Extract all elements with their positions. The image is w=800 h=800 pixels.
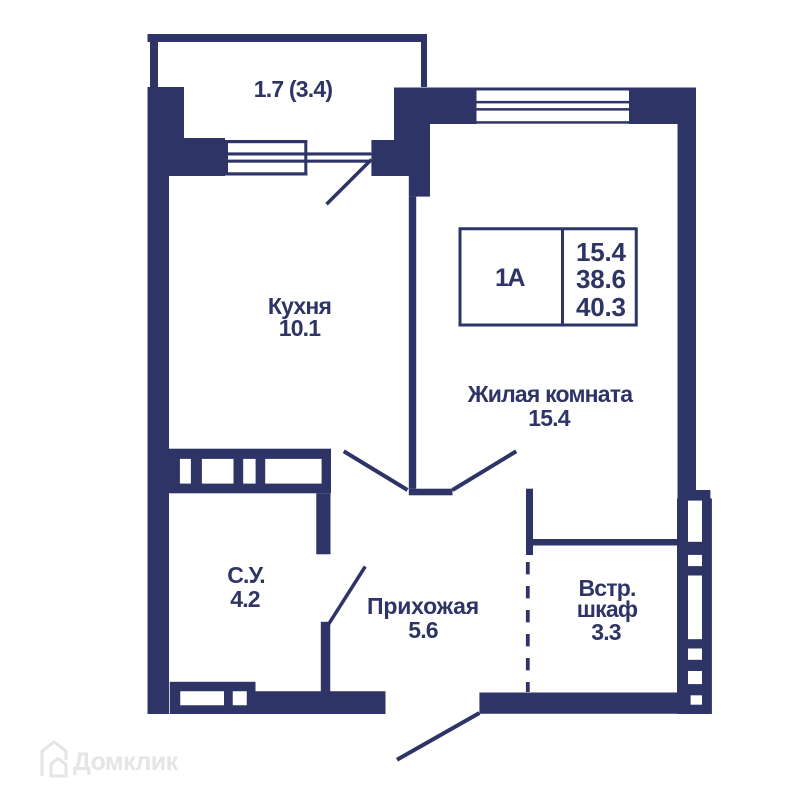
svg-text:15.4: 15.4 — [528, 405, 571, 431]
svg-text:1.7 (3.4): 1.7 (3.4) — [254, 76, 333, 102]
svg-text:40.3: 40.3 — [576, 292, 626, 322]
svg-text:5.6: 5.6 — [408, 617, 438, 643]
svg-text:Домклик: Домклик — [73, 748, 179, 776]
svg-text:Жилая комната: Жилая комната — [467, 381, 633, 407]
svg-text:1А: 1А — [495, 264, 525, 292]
svg-text:3.3: 3.3 — [591, 619, 621, 645]
svg-text:С.У.: С.У. — [227, 562, 265, 588]
svg-text:Прихожая: Прихожая — [367, 593, 479, 619]
svg-text:15.4: 15.4 — [576, 237, 627, 267]
svg-text:4.2: 4.2 — [230, 586, 260, 612]
svg-text:10.1: 10.1 — [279, 315, 322, 341]
svg-text:38.6: 38.6 — [576, 264, 626, 294]
